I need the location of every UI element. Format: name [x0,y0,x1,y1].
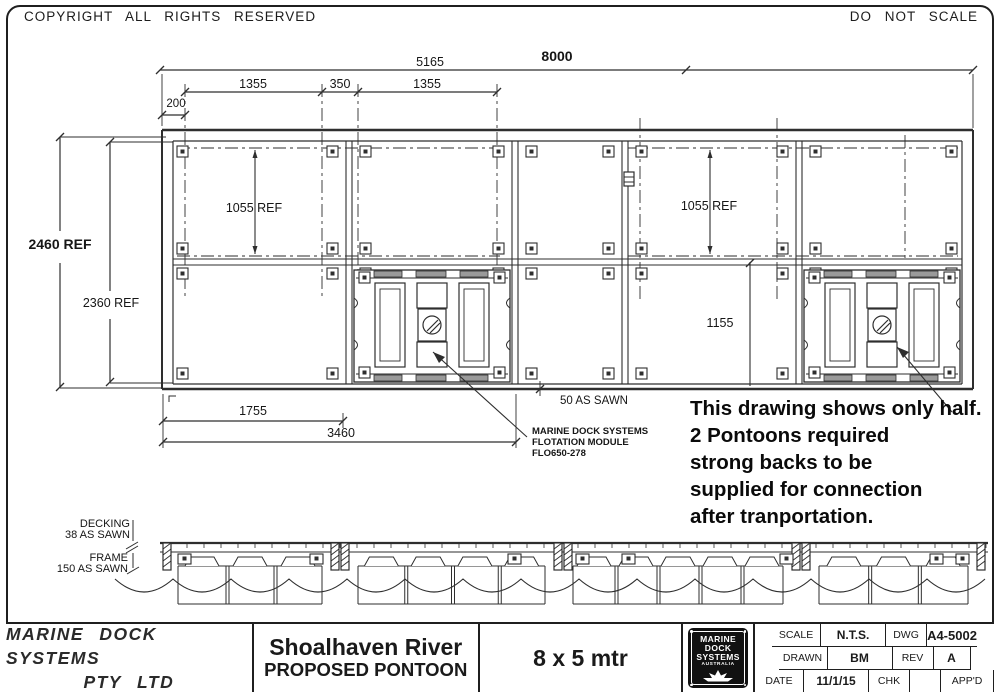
dim-2460-ref: 2460 REF [28,236,91,252]
module-label-line3: FLO650-278 [532,448,586,459]
info-row-scale: SCALE N.T.S. DWG A4-5002 [772,624,977,647]
dwg-label: DWG [885,624,926,646]
module-label-line1: MARINE DOCK SYSTEMS [532,426,648,437]
appd-empty-cell [993,670,994,692]
boat-cleat-icon [700,669,736,682]
marine-dock-systems-logo: MARINE DOCK SYSTEMS AUSTRALIA [688,628,748,688]
scale-label: SCALE [772,624,820,646]
rev-label: REV [892,647,933,669]
logo-cell: MARINE DOCK SYSTEMS AUSTRALIA [683,624,755,692]
drawing-info-table: SCALE N.T.S. DWG A4-5002 DRAWN BM REV A … [755,624,994,692]
dim-1355-left: 1355 [239,77,267,91]
company-line2: PTY LTD [83,670,174,694]
info-row-date: DATE 11/1/15 CHK APP'D [755,670,994,692]
title-block: MARINE DOCK SYSTEMS PTY LTD Shoalhaven R… [6,622,994,692]
chk-label: CHK [868,670,909,692]
dim-1055-ref-right: 1055 REF [681,199,738,213]
dim-8000: 8000 [541,48,572,64]
dim-1755: 1755 [239,404,267,418]
dwg-number: A4-5002 [926,624,977,646]
pontoon-size-cell: 8 x 5 mtr [480,624,683,692]
rev-empty-cell [970,647,971,669]
date-label: DATE [755,670,803,692]
note-line: supplied for connection [690,476,990,503]
dim-1055-ref-left: 1055 REF [226,201,283,215]
dim-1155: 1155 [707,316,734,330]
rev-value: A [933,647,970,669]
project-name: Shoalhaven River [269,635,462,660]
dim-1355-right: 1355 [413,77,441,91]
module-label-line2: FLOTATION MODULE [532,437,629,448]
dim-2360-ref: 2360 REF [83,296,140,310]
appd-label: APP'D [940,670,993,692]
drawn-label: DRAWN [779,647,827,669]
date-value: 11/1/15 [803,670,868,692]
drawing-sheet: { "header": { "copyright": "COPYRIGHT AL… [0,0,1000,696]
note-line: after tranportation. [690,503,990,530]
dim-350: 350 [330,77,351,91]
company-line1: MARINE DOCK SYSTEMS [6,622,252,670]
logo-line4: AUSTRALIA [702,662,735,668]
decking-size-label: 38 AS SAWN [65,529,130,541]
dim-50-as-sawn: 50 AS SAWN [560,395,628,407]
note-line: This drawing shows only half. [690,395,990,422]
company-name-cell: MARINE DOCK SYSTEMS PTY LTD [6,624,254,692]
drawn-value: BM [827,647,892,669]
dim-200: 200 [166,98,185,110]
pontoon-technical-drawing: 5165 8000 1355 350 1355 200 2460 REF 236… [0,0,1000,696]
project-subtitle: PROPOSED PONTOON [264,660,467,680]
scale-value: N.T.S. [820,624,885,646]
info-row-drawn: DRAWN BM REV A [779,647,971,670]
half-drawing-note: This drawing shows only half. 2 Pontoons… [690,395,990,530]
dim-5165: 5165 [416,55,444,69]
note-line: 2 Pontoons required [690,422,990,449]
frame-size-label: 150 AS SAWN [57,563,128,575]
logo-line3: SYSTEMS [696,653,739,662]
note-line: strong backs to be [690,449,990,476]
chk-empty-cell [909,670,940,692]
project-title-cell: Shoalhaven River PROPOSED PONTOON [254,624,480,692]
dim-3460: 3460 [327,426,355,440]
